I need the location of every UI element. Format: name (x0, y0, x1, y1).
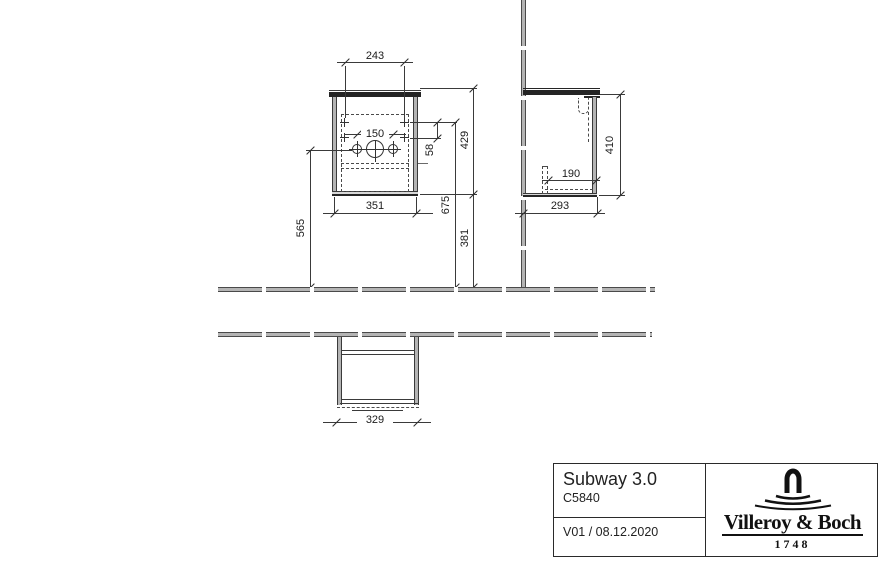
plan-hidden-front-line (337, 407, 419, 408)
dim-label-565: 565 (295, 213, 307, 243)
front-hidden-shelf-line (341, 168, 409, 169)
brand-year: 1748 (775, 537, 811, 552)
front-cabinet-right-side (413, 97, 418, 192)
dim-ext-line (404, 66, 405, 118)
plan-right-side (414, 337, 419, 405)
front-cabinet-left-side (332, 97, 337, 192)
left-tap-hole (352, 144, 362, 154)
dim-line-293 (515, 213, 605, 214)
dim-label-190: 190 (557, 168, 585, 180)
dim-line-190 (542, 180, 600, 181)
front-counter-top-line (329, 90, 421, 91)
dim-ext-line (420, 194, 477, 195)
plan-back-panel-line (342, 354, 414, 355)
dim-label-293: 293 (542, 200, 578, 212)
dim-label-150: 150 (361, 128, 389, 140)
dim-ext-line (420, 88, 477, 89)
dim-label-381: 381 (459, 224, 471, 252)
version-date: V01 / 08.12.2020 (563, 525, 658, 539)
dim-label-429: 429 (459, 126, 471, 154)
dim-label-351: 351 (357, 200, 393, 212)
hidden-bottom-shelf (545, 189, 593, 190)
dim-label-243: 243 (357, 50, 393, 62)
product-name: Subway 3.0 (563, 469, 657, 490)
side-cabinet-bottom (523, 193, 597, 197)
dim-line-565 (310, 150, 311, 287)
plan-left-side (337, 337, 342, 405)
dim-label-675: 675 (440, 191, 452, 219)
plan-bottom-line (342, 399, 414, 400)
drill-cross-top-left (340, 118, 349, 127)
title-block-divider (554, 517, 706, 518)
dim-label-329: 329 (357, 414, 393, 426)
front-hidden-basin-bottom (341, 163, 409, 164)
right-tap-hole (388, 144, 398, 154)
dim-line-410 (620, 94, 621, 195)
plan-bottom-line (340, 403, 419, 404)
hidden-door-inner-face (588, 112, 589, 142)
dim-ext-line (410, 122, 457, 123)
dim-line-429-381 (473, 88, 474, 287)
plan-front-panel (352, 410, 403, 411)
technical-drawing: 243 150 58 675 429 381 565 (0, 0, 883, 569)
floor-section-line-upper (218, 287, 655, 292)
title-block: Subway 3.0 C5840 V01 / 08.12.2020 Viller… (553, 463, 878, 557)
dim-line-675 (455, 122, 456, 287)
dim-label-58: 58 (424, 136, 436, 164)
plan-back-panel-line (342, 350, 414, 351)
villeroy-boch-fountain-icon (718, 467, 868, 511)
product-code: C5840 (563, 491, 600, 505)
side-counter-top-line (523, 88, 600, 89)
floor-section-line-lower (218, 332, 652, 337)
drill-cross-top-right (400, 118, 409, 127)
side-counter-bar (523, 90, 600, 95)
dim-ext-line (306, 150, 352, 151)
dim-label-410: 410 (604, 131, 616, 159)
brand-wordmark: Villeroy & Boch (722, 511, 863, 536)
brand-logo: Villeroy & Boch 1748 (706, 464, 879, 558)
wall-section-line (521, 0, 526, 288)
dim-ext-line (345, 66, 346, 118)
front-counter-bar (329, 92, 421, 97)
center-drain-hole (366, 140, 384, 158)
